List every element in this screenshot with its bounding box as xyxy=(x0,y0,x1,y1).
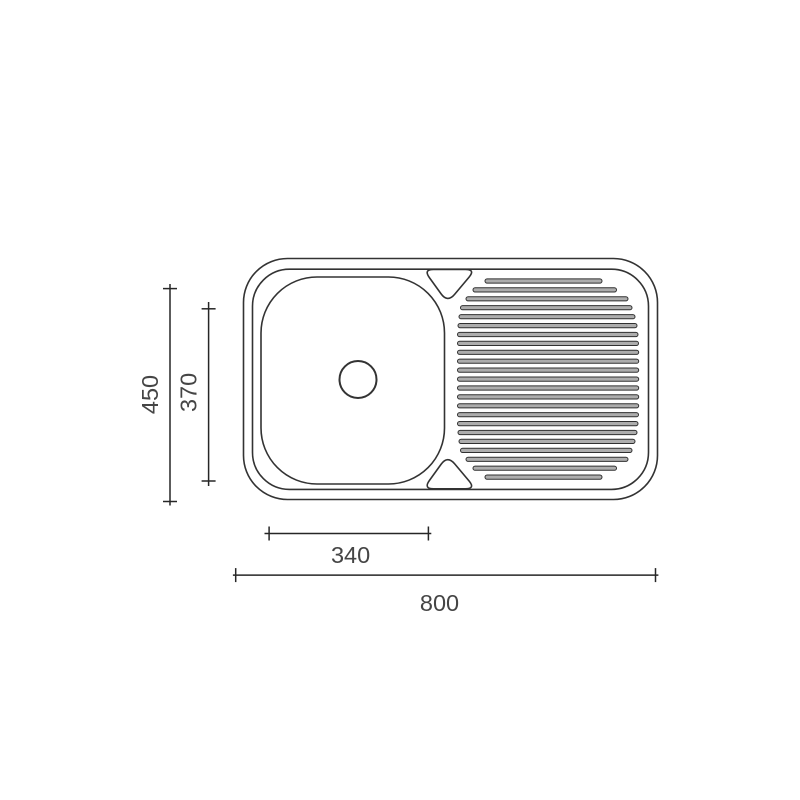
svg-text:340: 340 xyxy=(331,542,370,568)
svg-text:450: 450 xyxy=(137,375,163,414)
svg-text:800: 800 xyxy=(420,590,459,616)
svg-text:370: 370 xyxy=(176,373,202,412)
